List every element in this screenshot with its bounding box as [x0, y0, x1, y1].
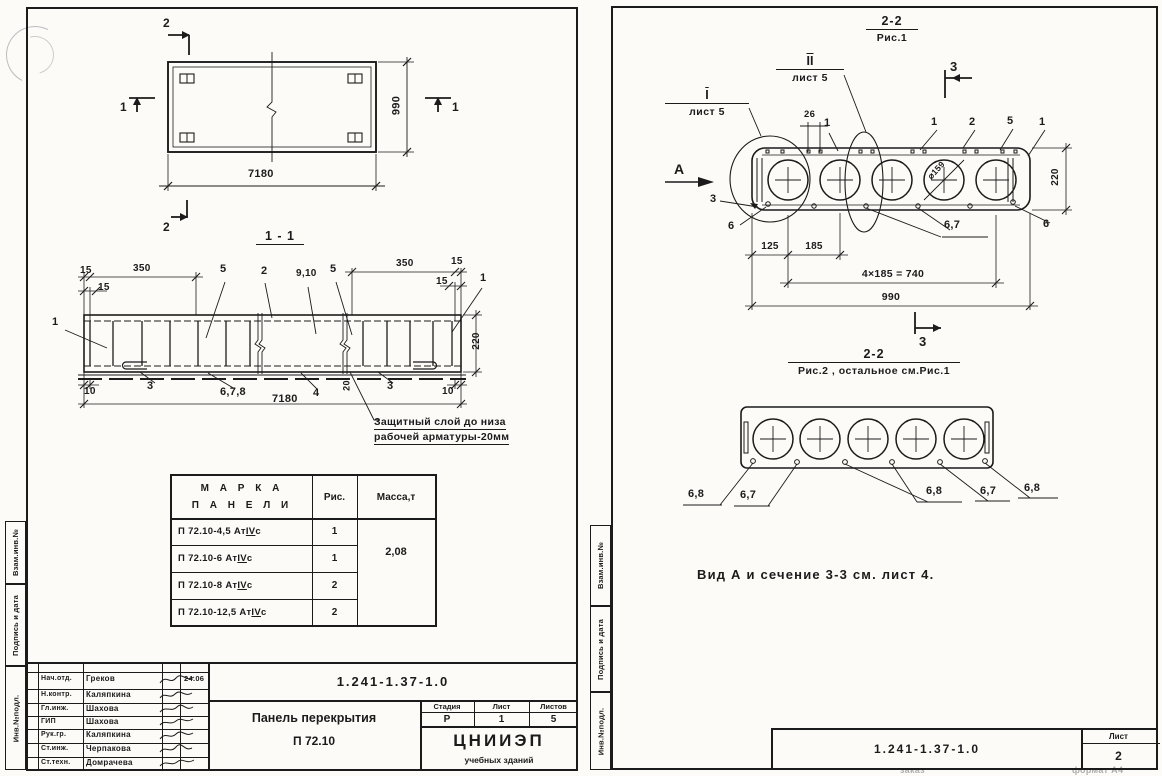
strip-box-inv-left: Инв.№подл.	[5, 666, 26, 770]
tb-sheets-value: 5	[529, 712, 578, 726]
drawing-scan: Взам.инв.№ Подпись и дата Инв.№подл.	[0, 0, 1162, 776]
signature	[158, 703, 198, 716]
tb-role: Гл.инж.	[41, 705, 69, 712]
table-row-fig: 1	[312, 545, 357, 572]
right-title-block: 1.241-1.37-1.0 Лист 2	[771, 728, 1158, 770]
cross-section-fig1-drawing	[640, 50, 1080, 350]
strip-label: Взам.инв.№	[596, 542, 605, 589]
signature	[158, 757, 198, 770]
tb-name: Домрачева	[86, 759, 133, 767]
tb-role: Ст.техн.	[41, 759, 71, 766]
strip-box-vzam-right: Взам.инв.№	[590, 525, 611, 606]
dim-label: 220	[472, 328, 482, 354]
rebar-label: 5	[1007, 116, 1013, 127]
dim-label: 350	[396, 259, 414, 269]
rebar-label: 9,10	[296, 269, 317, 279]
panel-marks-table: М А Р К А П А Н Е Л И Рис. Масса,т П 72.…	[170, 474, 437, 627]
table-row-mark: П 72.10-12,5 АтIVс	[178, 608, 267, 618]
rebar-label: 1	[52, 317, 58, 328]
strip-box-podpis-right: Подпись и дата	[590, 606, 611, 692]
marker-label: 3	[950, 60, 958, 73]
cross-section-fig2-drawing	[660, 395, 1080, 515]
dim-label: 7180	[272, 394, 298, 405]
fig2-heading: 2-2 Рис.2 , остальное см.Рис.1	[788, 347, 960, 377]
plan-dim-width: 990	[392, 91, 403, 121]
tb-name: Шахова	[86, 705, 119, 713]
tb-role: Ст.инж.	[41, 745, 68, 752]
tb-sheets-header: Листов	[529, 700, 578, 712]
tb-role: Рук.гр.	[41, 731, 66, 738]
tb-doc-number: 1.241-1.37-1.0	[773, 730, 1081, 768]
tb-stage-header: Стадия	[420, 700, 474, 712]
fig1-heading: 2-2 Рис.1	[866, 14, 918, 44]
dim-label: 350	[133, 264, 151, 274]
tb-role: Н.контр.	[41, 691, 72, 698]
dim-label: 15	[98, 283, 110, 293]
tb-role: ГИП	[41, 718, 56, 725]
table-row-mark: П 72.10-8 АтIVс	[178, 581, 253, 591]
notch-left	[744, 422, 748, 453]
view-a-arrow	[665, 177, 714, 187]
signature	[158, 743, 198, 757]
tb-title-line1: Панель перекрытия	[208, 706, 420, 730]
lifting-loops	[180, 74, 362, 142]
table-row-fig: 2	[312, 599, 357, 625]
plan-marker-label: 2	[163, 221, 170, 233]
heading-text: 1 - 1	[256, 229, 304, 245]
rebar-label: 1	[931, 117, 937, 128]
heading-text: 2-2	[866, 14, 918, 30]
tb-doc-number: 1.241-1.37-1.0	[208, 664, 578, 698]
tb-name: Греков	[86, 675, 115, 683]
signature	[158, 673, 198, 687]
table-row-fig: 2	[312, 572, 357, 599]
tb-org-sub: учебных зданий	[420, 752, 578, 768]
tb-name: Шахова	[86, 718, 119, 726]
section-marker-1-left	[129, 97, 155, 112]
rebar-label: 3	[387, 381, 393, 392]
heading-text: 2-2	[788, 347, 960, 363]
tb-name: Каляпкина	[86, 691, 131, 699]
rebar-label: 6,7	[944, 220, 960, 231]
notch-right	[985, 422, 989, 453]
detail-ellipse-I	[730, 136, 810, 222]
note-line-2: рабочей арматуры-20мм	[374, 432, 509, 445]
tb-sheet-label: Лист	[1081, 730, 1156, 743]
rebar-label: 2	[261, 266, 267, 277]
rebar-label: 3	[710, 194, 716, 205]
tb-sheet-header: Лист	[474, 700, 529, 712]
tb-org-name: ЦНИИЭП	[420, 728, 578, 754]
break-line	[267, 52, 276, 162]
strip-box-vzam-left: Взам.инв.№	[5, 521, 26, 584]
dim-label: 990	[876, 292, 906, 303]
dim-label: 15	[451, 257, 463, 267]
tb-title-line2: П 72.10	[208, 730, 420, 752]
table-header-mark: М А Р К А	[172, 480, 312, 496]
heading-sub: Рис.2 , остальное см.Рис.1	[788, 363, 960, 377]
break-lines	[255, 313, 350, 374]
section-marker-2-top	[168, 31, 190, 55]
strip-box-podpis-left: Подпись и дата	[5, 584, 26, 666]
strip-label: Взам.инв.№	[11, 529, 20, 576]
heading-sub: Рис.1	[866, 30, 918, 44]
table-header-fig: Рис.	[312, 476, 357, 518]
strip-label: Подпись и дата	[596, 619, 605, 680]
section-marker-2-bottom	[171, 200, 188, 221]
dim-label: 15	[80, 266, 92, 276]
strip-label: Инв.№подл.	[11, 694, 20, 742]
rebar-label: 6,8	[926, 486, 942, 497]
strip-box-inv-right: Инв.№подл.	[590, 692, 611, 770]
dim-label: 15	[436, 277, 448, 287]
rebar-label: 1	[1039, 117, 1045, 128]
table-row-fig: 1	[312, 518, 357, 545]
view-a-label: А	[674, 162, 684, 176]
plan-view-drawing	[40, 10, 500, 260]
table-mass-value: 2,08	[357, 542, 435, 562]
rebar-label: 6,8	[688, 489, 704, 500]
rebar-label: 6	[1043, 219, 1049, 230]
tb-name: Черпакова	[86, 745, 131, 753]
dim-label: 20	[343, 376, 352, 396]
dim-label: 220	[1051, 164, 1061, 190]
strip-label: Подпись и дата	[11, 595, 20, 656]
plan-marker-label: 1	[120, 101, 127, 113]
rebar-label: 6,7	[740, 490, 756, 501]
footer-format-text: формат А4	[1072, 766, 1123, 775]
rebar-label: 6,8	[1024, 483, 1040, 494]
section-marker-3-top	[945, 70, 972, 98]
signature	[158, 716, 198, 729]
tb-sheet-value: 1	[474, 712, 529, 726]
rebar-label: 6	[728, 221, 734, 232]
rebar-label: 6,7,8	[220, 387, 246, 398]
rebar-label: 6,7	[980, 486, 996, 497]
dim-label: 4×185 = 740	[853, 269, 933, 280]
table-row-mark: П 72.10-4,5 АтIVс	[178, 527, 261, 537]
section-1-1-heading: 1 - 1	[256, 229, 304, 245]
plan-marker-label: 2	[163, 17, 170, 29]
note-line-1: Защитный слой до низа	[374, 417, 506, 430]
dim-label: 125	[756, 242, 784, 252]
strip-label: Инв.№подл.	[596, 707, 605, 755]
rebar-label: 2	[969, 117, 975, 128]
signature	[158, 729, 198, 743]
leader-lines	[720, 75, 1050, 237]
signature	[158, 689, 198, 703]
tb-name: Каляпкина	[86, 731, 131, 739]
plan-dim-length: 7180	[248, 169, 274, 180]
left-title-block: Нач.отд. Н.контр. Гл.инж. ГИП Рук.гр. Ст…	[26, 662, 578, 771]
rebar-label: 3	[147, 381, 153, 392]
tb-role: Нач.отд.	[41, 675, 72, 682]
rebar-label: 1	[480, 273, 486, 284]
rebar-label: 5	[220, 264, 226, 275]
rebar-label: 5	[330, 264, 336, 275]
detail-ellipse-II	[845, 132, 883, 232]
rebar-label: 1	[824, 118, 830, 129]
dim-label: 10	[442, 387, 454, 397]
dim-label: 185	[800, 242, 828, 252]
table-header-mark2: П А Н Е Л И	[172, 497, 312, 513]
table-header-mass: Масса,т	[357, 476, 435, 518]
dim-label: 26	[804, 110, 815, 120]
section-marker-1-right	[425, 97, 451, 112]
dim-label: 10	[84, 387, 96, 397]
footer-order-text: заказ	[900, 766, 925, 775]
view-reference-note: Вид А и сечение 3-3 см. лист 4.	[697, 568, 934, 581]
plan-marker-label: 1	[452, 101, 459, 113]
stirrups	[90, 321, 452, 366]
tb-stage-value: Р	[420, 712, 474, 726]
rebar-label: 4	[313, 388, 319, 399]
table-row-mark: П 72.10-6 АтIVс	[178, 554, 253, 564]
section-marker-3-bottom	[915, 312, 941, 334]
